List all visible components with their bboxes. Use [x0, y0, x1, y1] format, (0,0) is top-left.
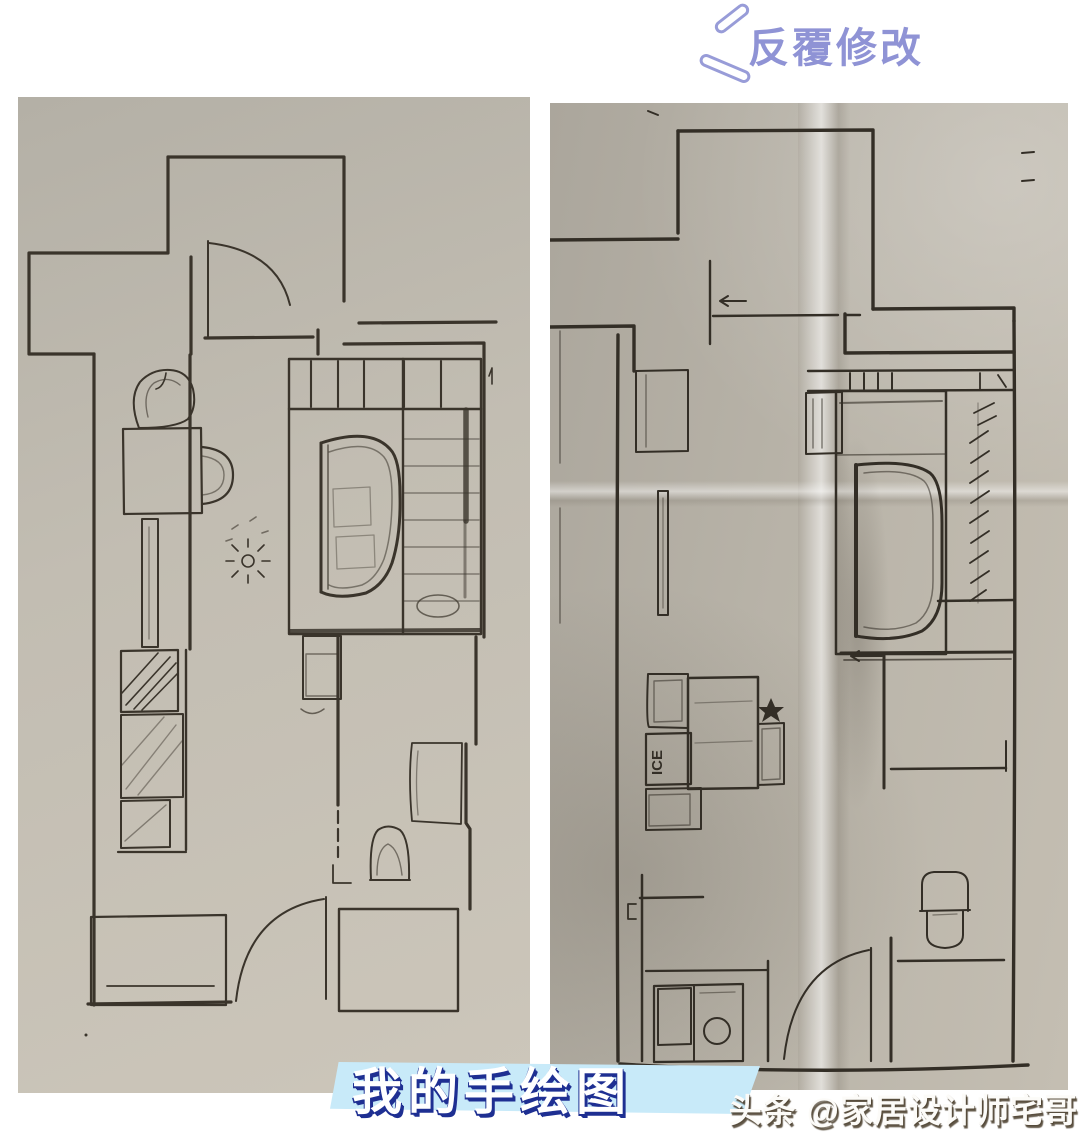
stamp-slash-icon: [712, 1, 752, 36]
author-watermark: 头条 @家居设计师宅哥: [729, 1084, 1078, 1132]
left-counter: [628, 370, 688, 919]
entry-cabinet: [646, 961, 768, 1062]
cabinet-strip: [118, 519, 186, 852]
revision-stamp: 反覆修改: [748, 14, 924, 74]
shoe-cabinet: [91, 915, 226, 1005]
fridge-label: ICE: [649, 750, 666, 775]
bathroom-fixtures: [339, 743, 462, 1011]
left-floorplan-drawing: [18, 97, 530, 1093]
fridge: ICE: [646, 733, 691, 785]
left-floorplan-photo: [18, 97, 530, 1093]
bed-curve: [321, 436, 459, 617]
light-symbol: [226, 517, 270, 583]
entry-door: [208, 241, 290, 338]
bathroom: [884, 654, 1006, 1061]
wash-basin: [134, 370, 194, 428]
pen-marks: [648, 111, 1034, 181]
washing-machine-drum: [704, 1018, 730, 1044]
page: ICE: [0, 0, 1080, 1133]
toilet: [123, 428, 233, 514]
bed-wardrobe-block: [289, 359, 481, 634]
right-floorplan-photo: ICE: [550, 103, 1068, 1090]
dining-set: [647, 674, 784, 789]
entry-door: [784, 948, 871, 1061]
walls: [29, 157, 496, 1005]
bed: [836, 391, 946, 654]
hatch-column: [970, 403, 996, 603]
corridor: [710, 261, 860, 344]
star-mark: [758, 698, 784, 722]
stamp-slash-icon: [698, 52, 753, 85]
toilet: [920, 872, 970, 948]
right-floorplan-drawing: ICE: [550, 103, 1068, 1090]
bathroom-door: [236, 811, 351, 1001]
sideboard: [646, 788, 701, 830]
closet-band: [808, 370, 1014, 391]
caption-title: 我的手绘图: [352, 1052, 632, 1124]
nightstand: [301, 636, 341, 714]
